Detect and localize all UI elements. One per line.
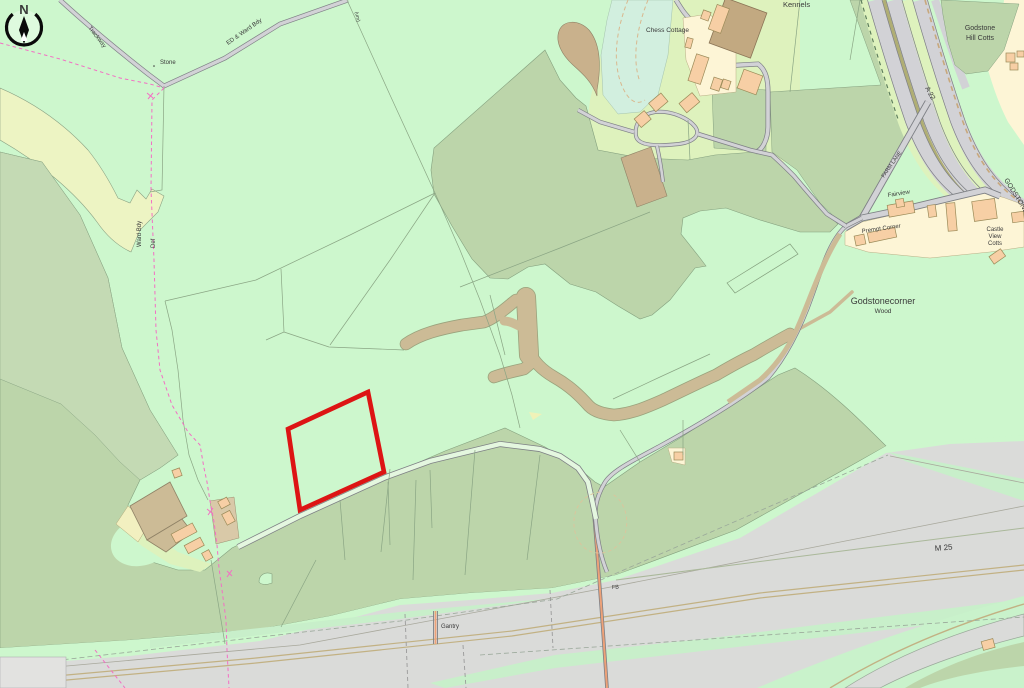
- svg-text:FB: FB: [612, 584, 620, 591]
- svg-text:Godstonecorner: Godstonecorner: [851, 296, 916, 306]
- svg-text:Cotts: Cotts: [988, 241, 1002, 247]
- svg-text:Godstone: Godstone: [965, 25, 995, 32]
- svg-text:Hill Cotts: Hill Cotts: [966, 35, 995, 42]
- svg-text:Def: Def: [151, 238, 157, 248]
- svg-text:Chess Cottage: Chess Cottage: [646, 27, 689, 34]
- svg-text:View: View: [989, 234, 1003, 240]
- svg-text:Castle: Castle: [986, 227, 1004, 233]
- svg-text:Stone: Stone: [160, 60, 176, 66]
- svg-text:M 25: M 25: [934, 542, 953, 553]
- svg-text:Wood: Wood: [875, 308, 892, 315]
- svg-text:Kennels: Kennels: [783, 0, 810, 9]
- svg-text:Gantry: Gantry: [441, 624, 459, 630]
- svg-text:N: N: [19, 2, 28, 17]
- svg-text:Ward Bdy: Ward Bdy: [137, 221, 143, 247]
